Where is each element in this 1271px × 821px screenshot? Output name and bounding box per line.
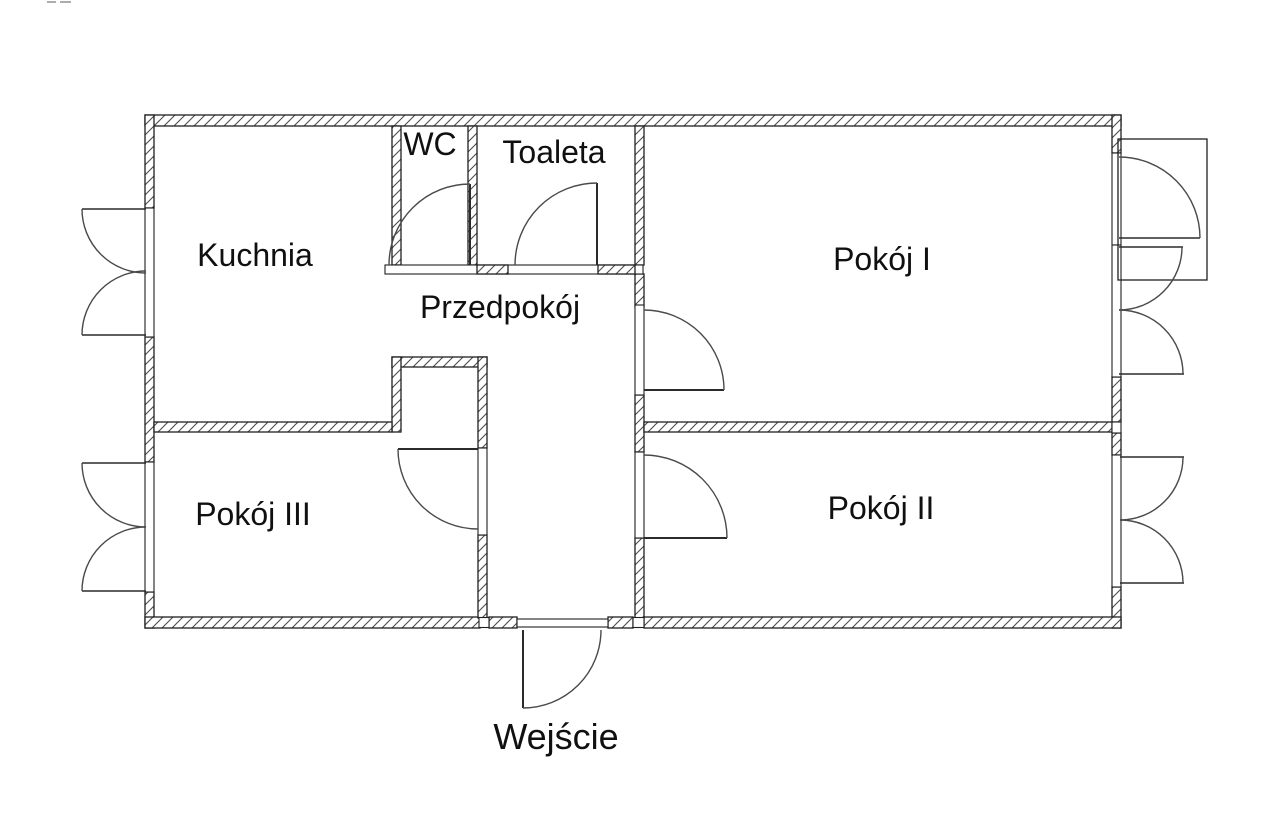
- pokoj3-window-frame: [145, 462, 154, 592]
- wall-corridor-right-b: [635, 274, 644, 307]
- wall-kuchnia-pokoj3-divider: [154, 422, 392, 432]
- wall-corridor-left-a: [478, 357, 487, 448]
- balcony: [1118, 139, 1207, 280]
- door-entrance: [523, 630, 601, 708]
- label-przedpokoj: Przedpokój: [420, 289, 580, 325]
- door-toaleta: [515, 183, 597, 265]
- label-kuchnia: Kuchnia: [197, 237, 313, 273]
- pokoj1-door-frame: [635, 305, 644, 395]
- floor-plan-canvas: Kuchnia WC Toaleta Przedpokój Pokój I Po…: [0, 0, 1271, 821]
- pokoj2-window-frame: [1112, 455, 1121, 587]
- wall-corridor-left-b: [478, 535, 487, 618]
- wall-left-upper: [145, 115, 154, 208]
- floor-plan-drawing: Kuchnia WC Toaleta Przedpokój Pokój I Po…: [0, 0, 1271, 821]
- wall-right-mid-b: [1112, 433, 1121, 455]
- exterior-walls: [145, 115, 1121, 628]
- balcony-door-frame: [1112, 153, 1121, 245]
- label-toaleta: Toaleta: [502, 134, 605, 170]
- label-wejscie: Wejście: [493, 716, 618, 757]
- window-pokoj2: [1120, 457, 1184, 583]
- door-pokoj1: [644, 310, 724, 390]
- wall-bottom-right: [644, 617, 1121, 628]
- balcony-outline: [1118, 139, 1207, 280]
- window-kuchnia: [82, 209, 146, 335]
- wall-hall-top: [392, 357, 487, 367]
- kuchnia-window-frame: [145, 208, 154, 337]
- pokoj2-door-frame: [635, 452, 644, 538]
- wall-corridor-right-c: [635, 395, 644, 452]
- cropped-watermark-artifact: [47, 1, 71, 3]
- wall-corridor-right-a: [635, 126, 644, 265]
- junction-right-divider: [1112, 422, 1121, 433]
- wall-hall-left: [392, 357, 401, 432]
- entrance-threshold: [517, 619, 608, 627]
- interior-walls: [154, 126, 1112, 618]
- label-pokoj1: Pokój I: [833, 241, 931, 277]
- window-pokoj1: [1119, 247, 1184, 374]
- wall-bottom-mid-a: [489, 617, 517, 628]
- wall-right-upper: [1112, 115, 1121, 153]
- wall-wc-left: [392, 126, 401, 265]
- junction-bottom-left-wall: [479, 618, 489, 628]
- label-pokoj2: Pokój II: [828, 490, 935, 526]
- threshold-stub-center: [477, 265, 508, 274]
- threshold-stub-right: [598, 265, 635, 274]
- wall-left-middle: [145, 337, 154, 462]
- door-pokoj2: [644, 455, 727, 538]
- room-labels: Kuchnia WC Toaleta Przedpokój Pokój I Po…: [195, 126, 934, 757]
- wall-pokoj1-pokoj2-divider: [644, 422, 1112, 432]
- pokoj3-door-frame: [478, 448, 487, 535]
- thresholds-and-frames: [145, 153, 1121, 628]
- label-pokoj3: Pokój III: [195, 496, 311, 532]
- label-wc: WC: [403, 126, 456, 162]
- junction-bottom-right-wall: [633, 618, 644, 628]
- pokoj1-window-frame: [1112, 245, 1121, 377]
- window-pokoj3: [82, 463, 146, 591]
- door-pokoj3: [398, 449, 478, 529]
- wall-corridor-right-d: [635, 538, 644, 618]
- wall-top: [145, 115, 1121, 126]
- wall-bottom-mid-b: [608, 617, 633, 628]
- wall-bottom-left: [145, 617, 480, 628]
- wall-right-mid-a: [1112, 377, 1121, 422]
